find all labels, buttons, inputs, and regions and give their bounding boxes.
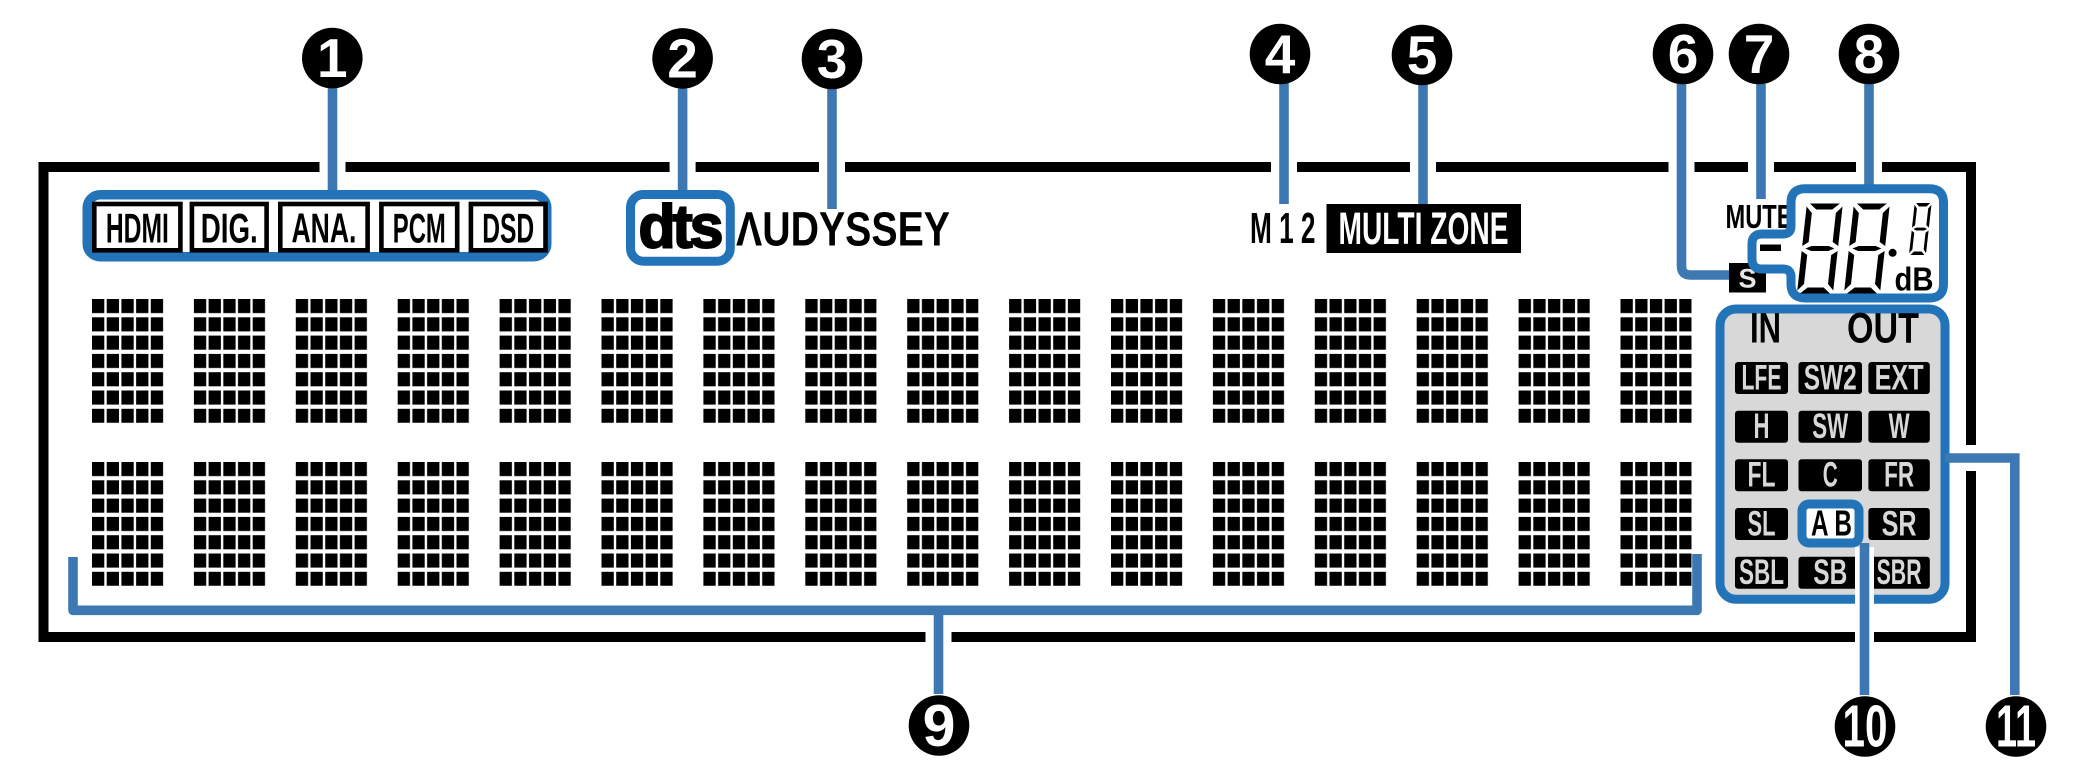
svg-text:IN: IN xyxy=(1750,305,1781,353)
svg-text:3: 3 xyxy=(817,28,848,90)
svg-text:FL: FL xyxy=(1748,456,1776,495)
svg-text:DSD: DSD xyxy=(482,204,534,251)
svg-text:HDMI: HDMI xyxy=(106,204,169,251)
svg-text:7: 7 xyxy=(1744,23,1775,85)
svg-text:5: 5 xyxy=(1407,24,1438,86)
svg-text:EXT: EXT xyxy=(1875,358,1924,397)
svg-text:MULTI ZONE: MULTI ZONE xyxy=(1339,203,1509,254)
svg-text:A B: A B xyxy=(1811,503,1852,544)
svg-text:2: 2 xyxy=(667,27,698,89)
svg-text:dB: dB xyxy=(1895,261,1934,298)
svg-text:M 1 2: M 1 2 xyxy=(1250,204,1316,253)
svg-text:11: 11 xyxy=(1996,694,2036,760)
svg-text:H: H xyxy=(1754,407,1770,446)
svg-text:SB: SB xyxy=(1813,553,1847,592)
svg-text:10: 10 xyxy=(1843,694,1888,760)
svg-text:SW: SW xyxy=(1812,407,1848,446)
svg-text:SBL: SBL xyxy=(1739,553,1784,592)
svg-text:SR: SR xyxy=(1882,504,1917,543)
svg-text:SL: SL xyxy=(1748,504,1776,543)
svg-text:ANA.: ANA. xyxy=(291,204,356,251)
svg-text:FR: FR xyxy=(1884,456,1914,495)
svg-text:8: 8 xyxy=(1854,23,1885,85)
svg-text:SBR: SBR xyxy=(1877,553,1922,592)
svg-text:6: 6 xyxy=(1668,23,1699,85)
svg-text:9: 9 xyxy=(923,693,956,759)
svg-text:C: C xyxy=(1823,456,1838,495)
svg-text:1: 1 xyxy=(317,27,348,89)
svg-text:ΛUDYSSEY: ΛUDYSSEY xyxy=(736,204,950,257)
svg-text:SW2: SW2 xyxy=(1804,358,1857,397)
svg-text:OUT: OUT xyxy=(1847,305,1919,353)
svg-text:PCM: PCM xyxy=(393,204,446,251)
svg-text:4: 4 xyxy=(1265,23,1296,85)
svg-text:dts: dts xyxy=(639,193,722,261)
svg-text:W: W xyxy=(1889,407,1910,446)
svg-text:LFE: LFE xyxy=(1742,358,1782,397)
svg-text:DIG.: DIG. xyxy=(201,204,258,251)
